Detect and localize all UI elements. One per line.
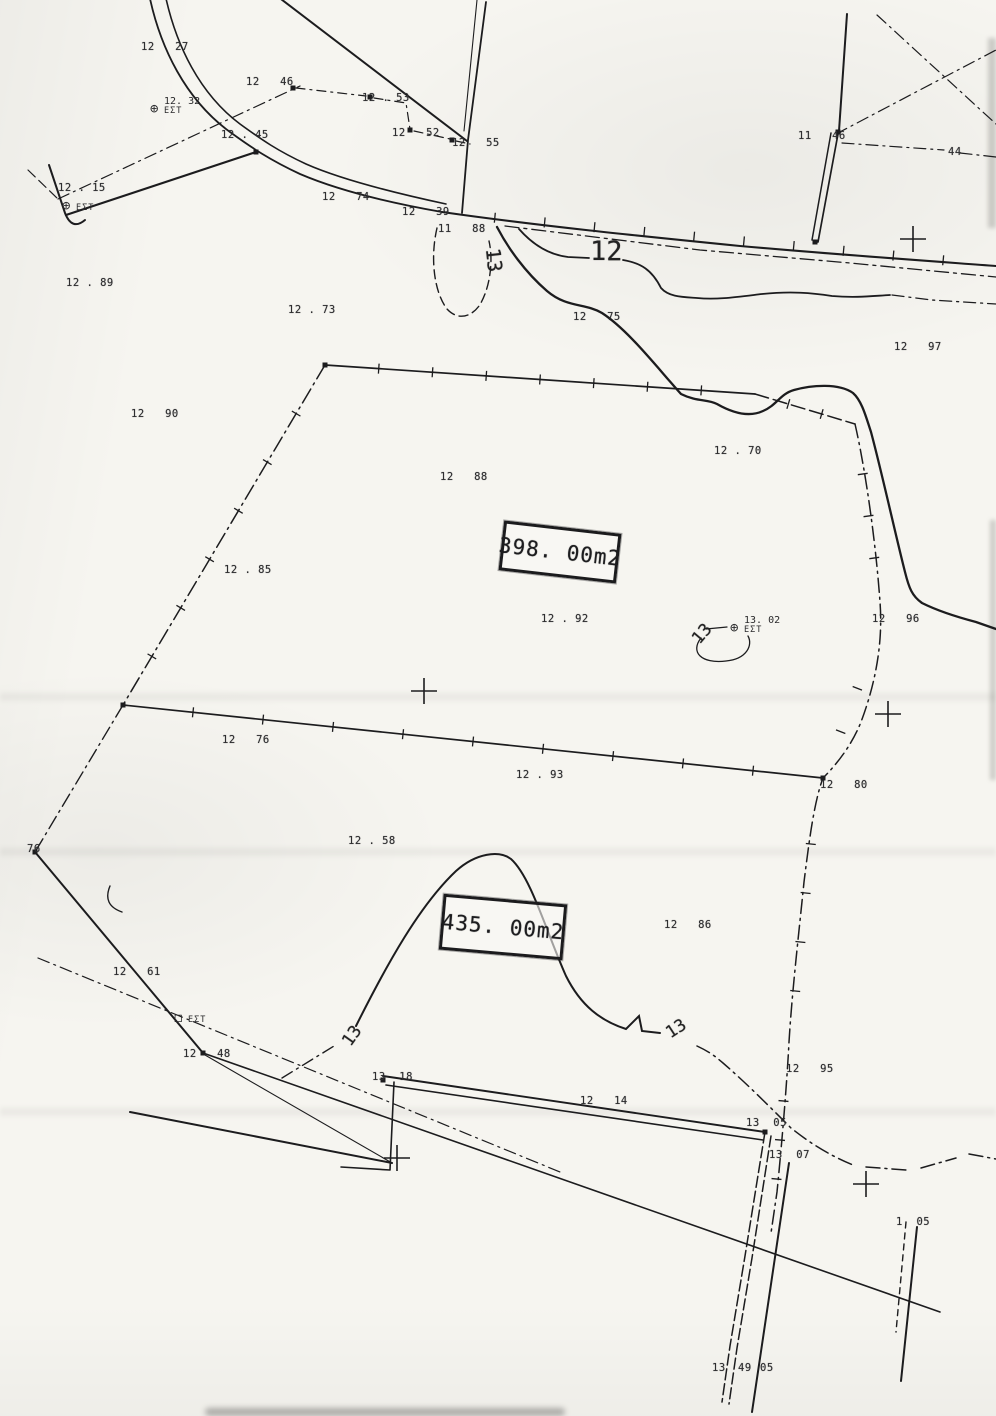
- boundary-tick: [192, 707, 193, 717]
- benchmark-code: ΕΣΤ: [76, 203, 94, 213]
- spot-elevation-label: 11 46: [798, 130, 846, 142]
- boundary-tick: [775, 1140, 785, 1141]
- spot-elevation-label: 12 90: [131, 408, 179, 420]
- boundary-tick: [836, 730, 845, 734]
- spot-elevation-label: 12 74: [322, 191, 370, 203]
- boundary-tick: [176, 605, 185, 610]
- spot-elevation-label: 12 95: [786, 1063, 834, 1075]
- boundary-line: [203, 1053, 940, 1312]
- spot-elevation-label: 12 27: [141, 41, 189, 53]
- spot-elevation-label: 12 . 93: [516, 769, 564, 781]
- boundary-tick: [472, 737, 473, 747]
- spot-elevation-label: 12 61: [113, 966, 161, 978]
- boundary-tick: [486, 371, 487, 381]
- spot-elevation-label: 49: [738, 1362, 752, 1374]
- boundary-dashdot: [877, 15, 996, 124]
- spot-elevation-label: 12 80: [820, 779, 868, 791]
- spot-elevation-label: 76: [27, 843, 41, 855]
- benchmark-icon: ⊕: [62, 199, 70, 213]
- spot-elevation-label: 12 86: [664, 919, 712, 931]
- spot-elevation-label: 13 18: [372, 1071, 413, 1083]
- spot-elevation-label: 12 88: [440, 471, 488, 483]
- boundary-tick: [795, 941, 805, 942]
- spot-elevation-label: 12 . 73: [288, 304, 336, 316]
- spot-elevation-label: 12 . 70: [714, 445, 762, 457]
- spot-elevation-label: 12 . 89: [66, 277, 114, 289]
- boundary-tick: [148, 654, 157, 659]
- boundary-tick: [694, 232, 695, 242]
- boundary-dashdot: [28, 170, 58, 199]
- spot-elevation-label: 12 97: [894, 341, 942, 353]
- boundary-dashdot: [38, 958, 560, 1172]
- boundary-tick: [542, 744, 543, 754]
- spot-elevation-label: 12 . 15: [58, 182, 106, 194]
- boundary-tick: [540, 375, 541, 385]
- contour-13: [282, 1046, 334, 1078]
- vertex-marker: [323, 363, 328, 368]
- road-bottom-outer: [383, 1076, 765, 1132]
- boundary-dashdot: [842, 143, 996, 157]
- boundary-tick: [864, 515, 874, 516]
- spot-elevation-label: 12 46: [246, 76, 294, 88]
- spot-elevation-label: 13: [712, 1362, 726, 1374]
- benchmark-icon: ◻: [174, 1011, 182, 1025]
- spot-elevation-label: 12 48: [183, 1048, 231, 1060]
- survey-tick-marks: [148, 213, 944, 1180]
- spot-elevation-label: 12 52: [392, 127, 440, 139]
- spot-elevation-label: 44: [948, 146, 962, 158]
- boundary-tick: [612, 751, 613, 761]
- spot-elevation-label: 12 . 45: [221, 129, 269, 141]
- boundary-tick: [790, 990, 800, 991]
- boundary-dash: [896, 1222, 906, 1332]
- boundary-tick: [772, 1179, 782, 1180]
- parcel-area-label: 435. 00m2: [441, 910, 565, 945]
- spot-elevation-label: 12 14: [580, 1095, 628, 1107]
- boundary-line: [130, 1112, 392, 1163]
- parcel-area-label: 398. 00m2: [498, 533, 623, 571]
- parcel2-left-boundary: [35, 705, 123, 852]
- benchmark-code: ΕΣΤ: [164, 106, 182, 116]
- benchmark-code: ΕΣΤ: [188, 1015, 206, 1025]
- benchmark-icon: ⊕: [150, 102, 158, 116]
- boundary-tick: [752, 766, 753, 776]
- boundary-line: [277, 0, 467, 141]
- benchmark-icon: ⊕: [730, 621, 738, 635]
- spot-elevation-label: 12 76: [222, 734, 270, 746]
- boundary-dashdot: [505, 226, 996, 277]
- spot-elevation-label: 12 96: [872, 613, 920, 625]
- spot-elevation-label: 05: [760, 1362, 774, 1374]
- spot-elevation-label: 12 . 92: [541, 613, 589, 625]
- spot-elevation-label: 11 88: [438, 223, 486, 235]
- boundary-tick: [292, 411, 301, 416]
- boundary-tick: [262, 715, 263, 725]
- boundary-line: [341, 1082, 394, 1170]
- boundary-tick: [779, 1101, 789, 1102]
- boundary-tick: [378, 364, 379, 374]
- boundary-tick: [234, 508, 243, 513]
- boundary-tick: [806, 843, 816, 844]
- boundary-tick: [205, 557, 214, 562]
- boundary-tick: [494, 213, 495, 223]
- boundary-tick: [332, 722, 333, 732]
- vertex-marker: [121, 703, 126, 708]
- boundary-tick: [853, 687, 862, 691]
- contour-13: [697, 1046, 996, 1170]
- spot-elevation-label: 12 39: [402, 206, 450, 218]
- boundary-tick: [263, 460, 272, 465]
- vertex-marker: [763, 1130, 768, 1135]
- grid-crosses: [384, 226, 926, 1197]
- road-bottom-inner: [386, 1085, 763, 1140]
- contour-12: [519, 229, 589, 258]
- boundary-tick: [943, 255, 944, 265]
- spot-elevation-label: 1 05: [896, 1216, 930, 1228]
- boundary-tick: [858, 473, 868, 474]
- vertex-marker: [254, 150, 259, 155]
- scanned-survey-map: 12 2712 4612 . 5312 5212 5511 464412 . 4…: [0, 0, 996, 1416]
- parcel1-top-boundary-ext: [755, 394, 855, 424]
- small-arc: [108, 886, 122, 912]
- boundary-tick: [593, 378, 594, 388]
- survey-linework: [0, 0, 996, 1416]
- boundary-tick: [682, 758, 683, 768]
- benchmark-code: ΕΣΤ: [744, 625, 762, 635]
- contour-elevation-label: 13: [481, 247, 507, 273]
- parcel-area-box-435: 435. 00m2: [439, 894, 567, 961]
- boundary-tick: [402, 729, 403, 739]
- spot-elevation-label: 12 55: [452, 137, 500, 149]
- boundary-dashdot: [836, 50, 996, 134]
- boundary-tick: [701, 385, 702, 395]
- spot-elevation-label: 12 75: [573, 311, 621, 323]
- spot-elevation-label: 13 05: [746, 1117, 787, 1129]
- pole-line: [464, 0, 477, 131]
- boundary-line: [752, 1163, 789, 1412]
- spot-elevation-label: 12 . 53: [362, 92, 410, 104]
- boundary-line: [839, 14, 847, 131]
- boundary-tick: [432, 367, 433, 377]
- contour-12: [623, 260, 890, 299]
- spot-elevation-label: 12 . 85: [224, 564, 272, 576]
- spot-elevation-label: 12 . 58: [348, 835, 396, 847]
- boundary-tick: [787, 399, 790, 409]
- vertex-marker: [813, 240, 818, 245]
- spot-elevation-label: 13 07: [769, 1149, 810, 1161]
- contour-elevation-label: 12: [590, 236, 623, 267]
- boundary-tick: [647, 382, 648, 392]
- boundary-tick: [743, 236, 744, 246]
- contour-12-dash: [892, 295, 996, 304]
- boundary-tick: [869, 557, 879, 558]
- parcel-right-boundary: [771, 424, 881, 1233]
